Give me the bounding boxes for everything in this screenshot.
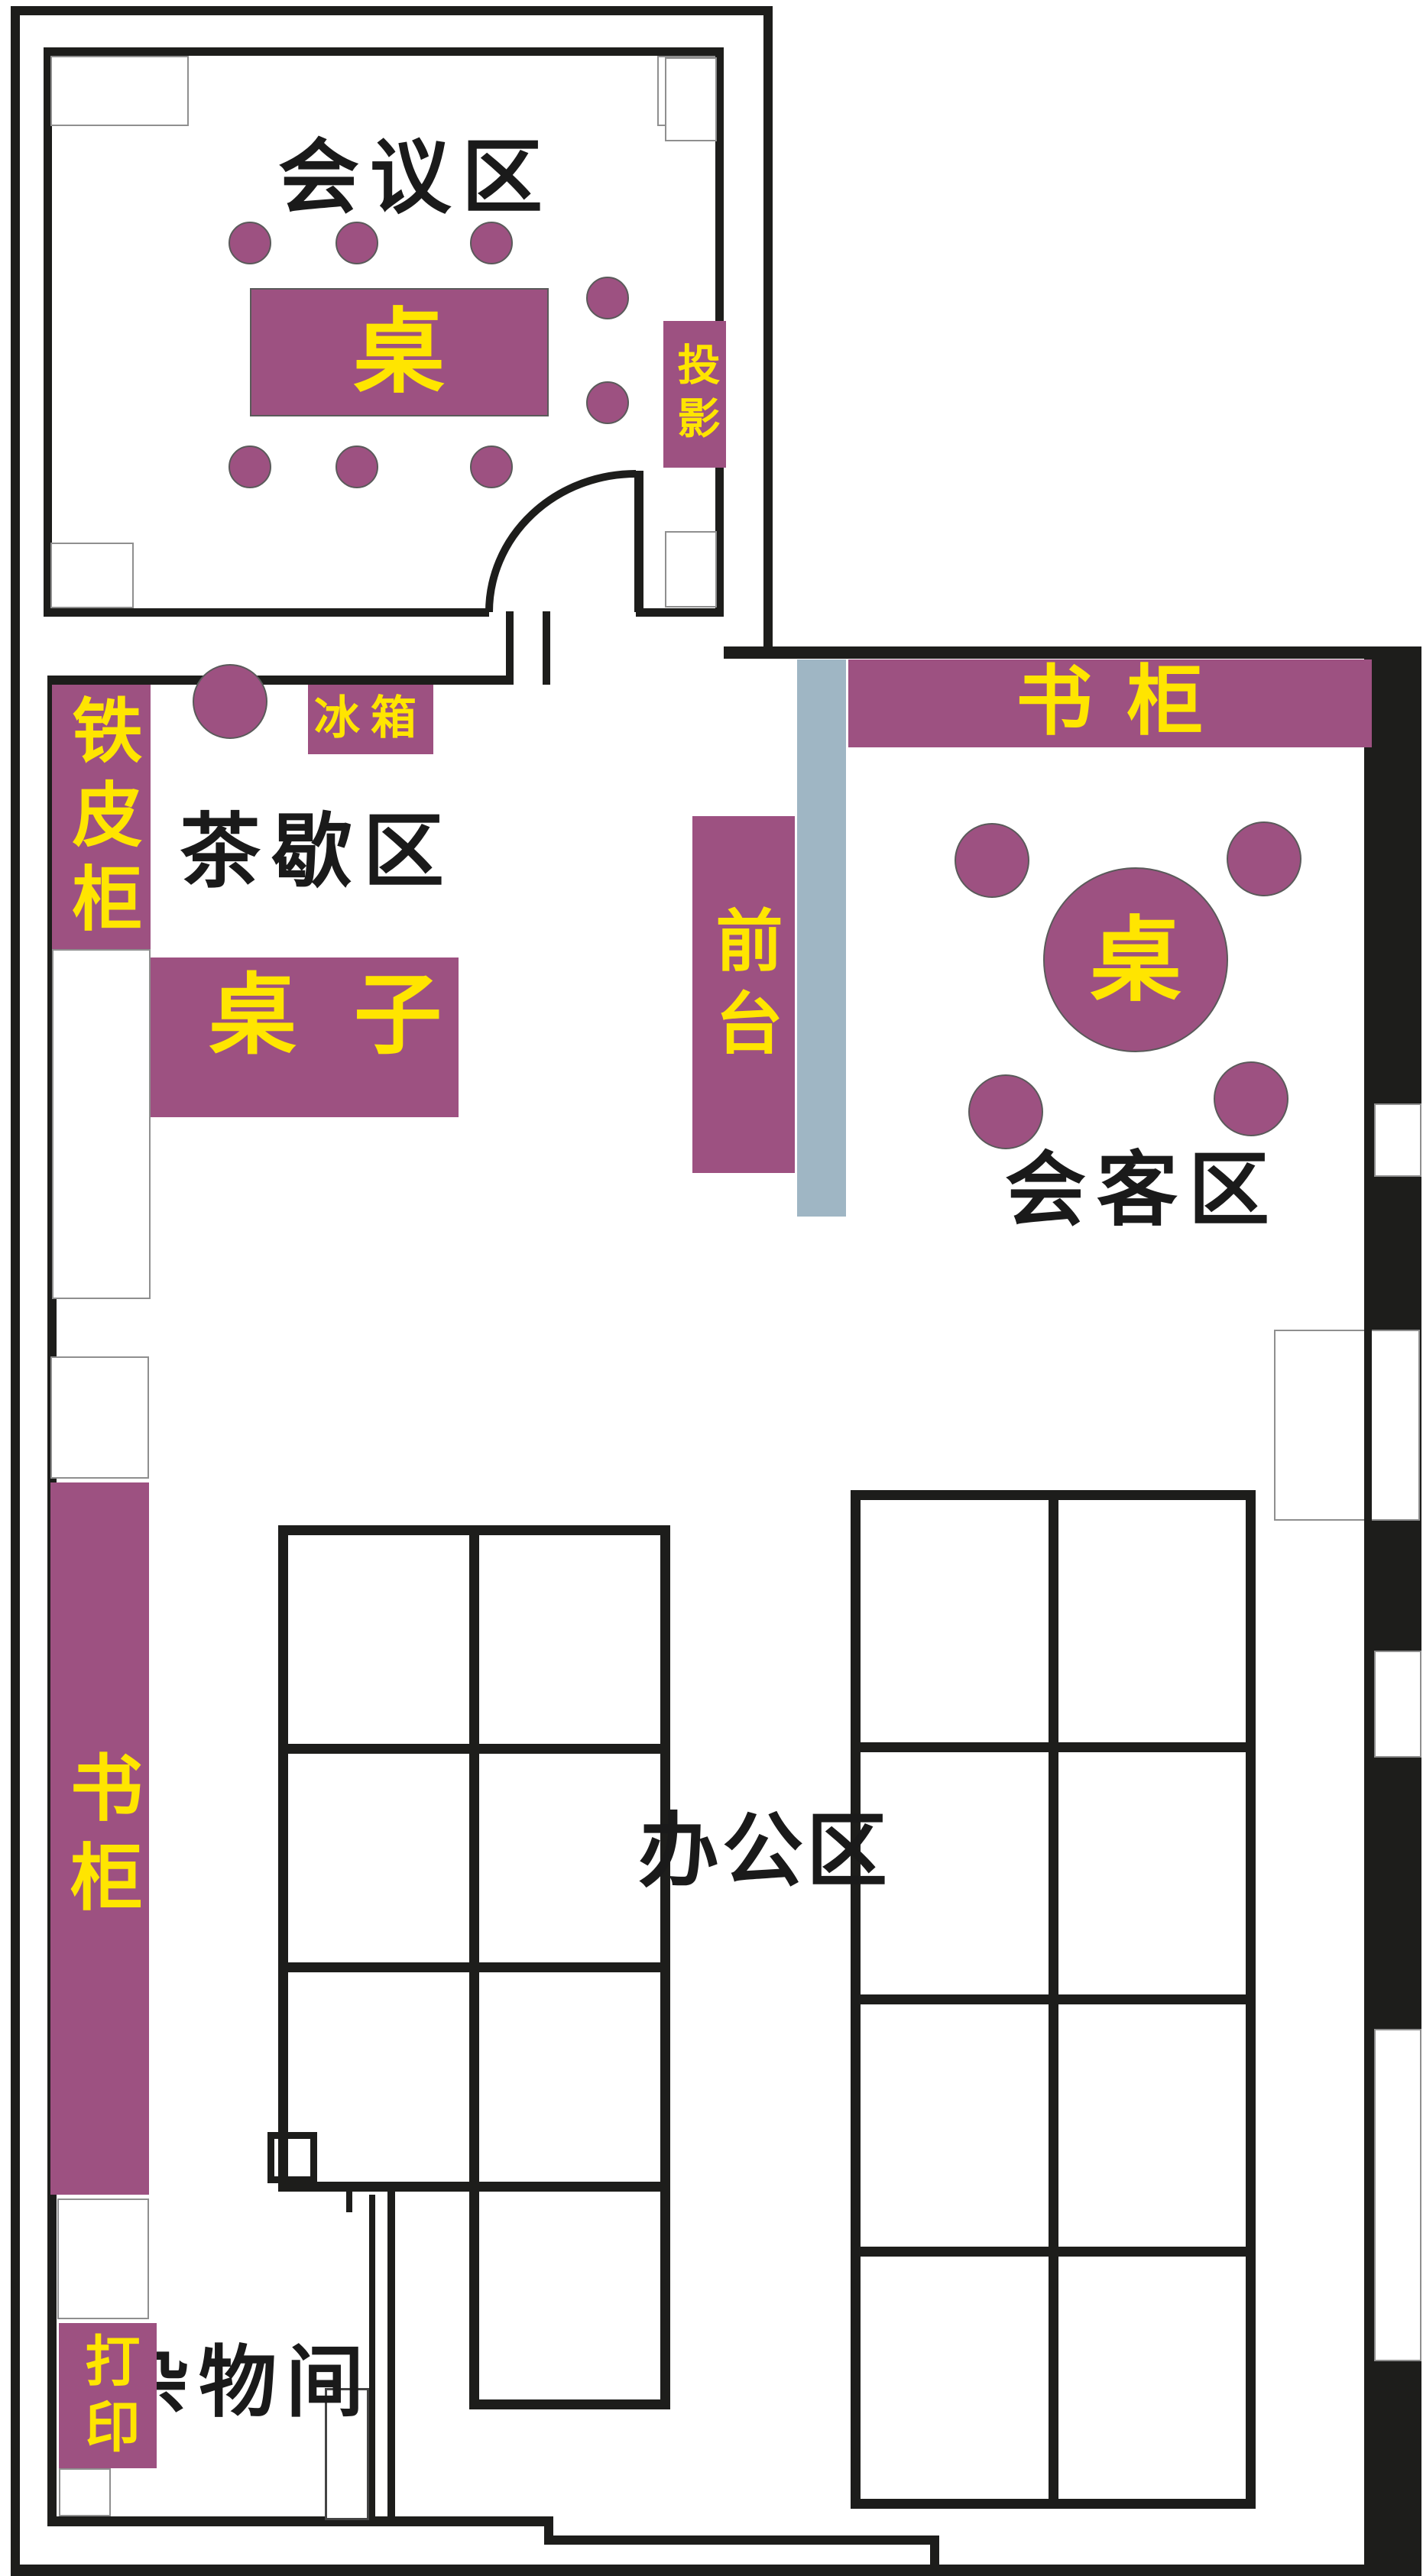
guest-area-label: 会客区 [990, 1150, 1295, 1231]
outer-wall-step-right [763, 15, 773, 659]
grid-line [278, 1744, 670, 1754]
meeting-room-wall-bottom-right [636, 608, 724, 617]
chair [335, 222, 378, 264]
grid-line [851, 1994, 1256, 2004]
chair [470, 446, 513, 488]
passage-jamb-right [543, 611, 550, 685]
chair [229, 222, 271, 264]
cabinet-box [57, 2199, 149, 2319]
grid-line [469, 2399, 670, 2409]
bottom-wall-1 [47, 2516, 553, 2526]
reception-partition [797, 659, 846, 1217]
chair [955, 823, 1029, 898]
chair [586, 277, 629, 319]
meeting-table-label: 桌 [323, 307, 475, 399]
chair [968, 1074, 1043, 1149]
outer-wall-top [11, 6, 773, 15]
outer-wall-left [11, 6, 20, 2576]
grid-line [278, 1962, 670, 1972]
bookcase-top-label: 书柜 [957, 663, 1263, 740]
tea-table-label: 桌子 [151, 972, 459, 1060]
chair [586, 381, 629, 424]
printer-label: 打印 [80, 2332, 135, 2464]
floor-plan: 桌 投影 会议区 铁皮柜 冰箱 茶歇区 桌子 书柜 前台 桌 会客区 书柜 办公… [0, 0, 1423, 2576]
bottom-wall-2 [544, 2535, 939, 2545]
window [1374, 1103, 1421, 1177]
front-desk-label: 前台 [710, 906, 777, 1071]
guest-table-label: 桌 [1059, 915, 1212, 1007]
meeting-area-label: 会议区 [263, 138, 569, 219]
tea-area-label: 茶歇区 [164, 812, 470, 893]
chair [335, 446, 378, 488]
grid-line [278, 1525, 670, 1535]
chair [1227, 821, 1301, 896]
bookcase-left-label: 书柜 [63, 1750, 136, 1929]
grid-line [851, 2499, 1256, 2509]
window [665, 531, 717, 608]
passage-jamb-left [506, 611, 514, 685]
stool [193, 664, 267, 739]
grid-line [278, 1525, 288, 2192]
cabinet-counter [52, 949, 151, 1299]
storage-small-door-box [267, 2132, 317, 2183]
metal-cabinet-label: 铁皮柜 [66, 694, 136, 946]
grid-line [851, 1742, 1256, 1752]
window [50, 56, 189, 126]
projector-label: 投影 [673, 342, 716, 449]
outer-wall-bottom [11, 2565, 1421, 2576]
meeting-room-wall-left [44, 47, 52, 617]
grid-line [851, 1490, 1256, 1500]
chair [1214, 1061, 1288, 1136]
window [50, 1356, 149, 1479]
right-wall-inner-line [1364, 1330, 1372, 1521]
window [665, 57, 717, 141]
window [1374, 2029, 1421, 2361]
window [59, 2468, 111, 2516]
window [1374, 1651, 1421, 1758]
fridge-label: 冰箱 [294, 695, 447, 741]
meeting-door-swing-arc [481, 469, 643, 621]
bottom-wall-step-2 [930, 2535, 939, 2568]
office-area-label: 办公区 [611, 1811, 917, 1892]
tea-area-top-wall [47, 676, 506, 685]
chair [470, 222, 513, 264]
chair [229, 446, 271, 488]
meeting-room-wall-top [44, 47, 724, 56]
grid-line [851, 2247, 1256, 2257]
window [50, 543, 134, 608]
window [1274, 1330, 1420, 1521]
grid-line [278, 2182, 670, 2192]
meeting-room-wall-bottom-left [44, 608, 489, 617]
